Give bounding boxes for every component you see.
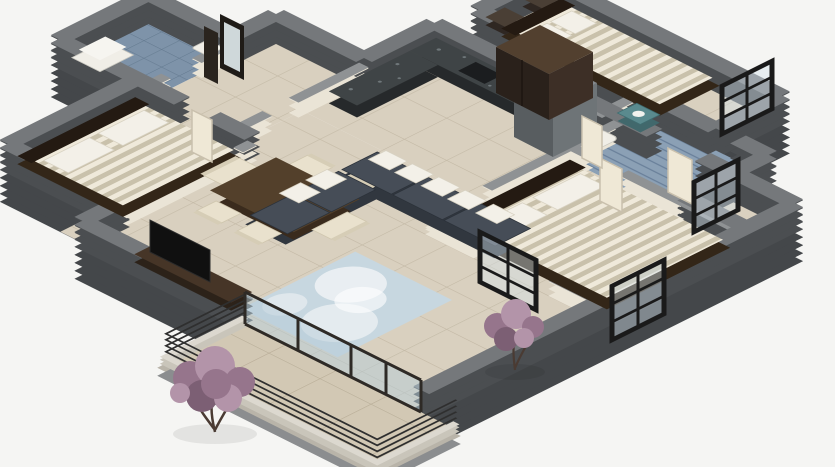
door-leaf bbox=[192, 110, 212, 162]
door-leaf bbox=[582, 116, 602, 168]
tree-foliage bbox=[201, 369, 231, 399]
tree-foliage bbox=[170, 383, 190, 403]
tree-foliage bbox=[514, 328, 534, 348]
floor-plan-stage bbox=[0, 0, 835, 467]
mirror-glass bbox=[224, 22, 240, 72]
mirror-cabinet-back-panel bbox=[204, 26, 218, 84]
floor-plan-render bbox=[0, 0, 835, 467]
